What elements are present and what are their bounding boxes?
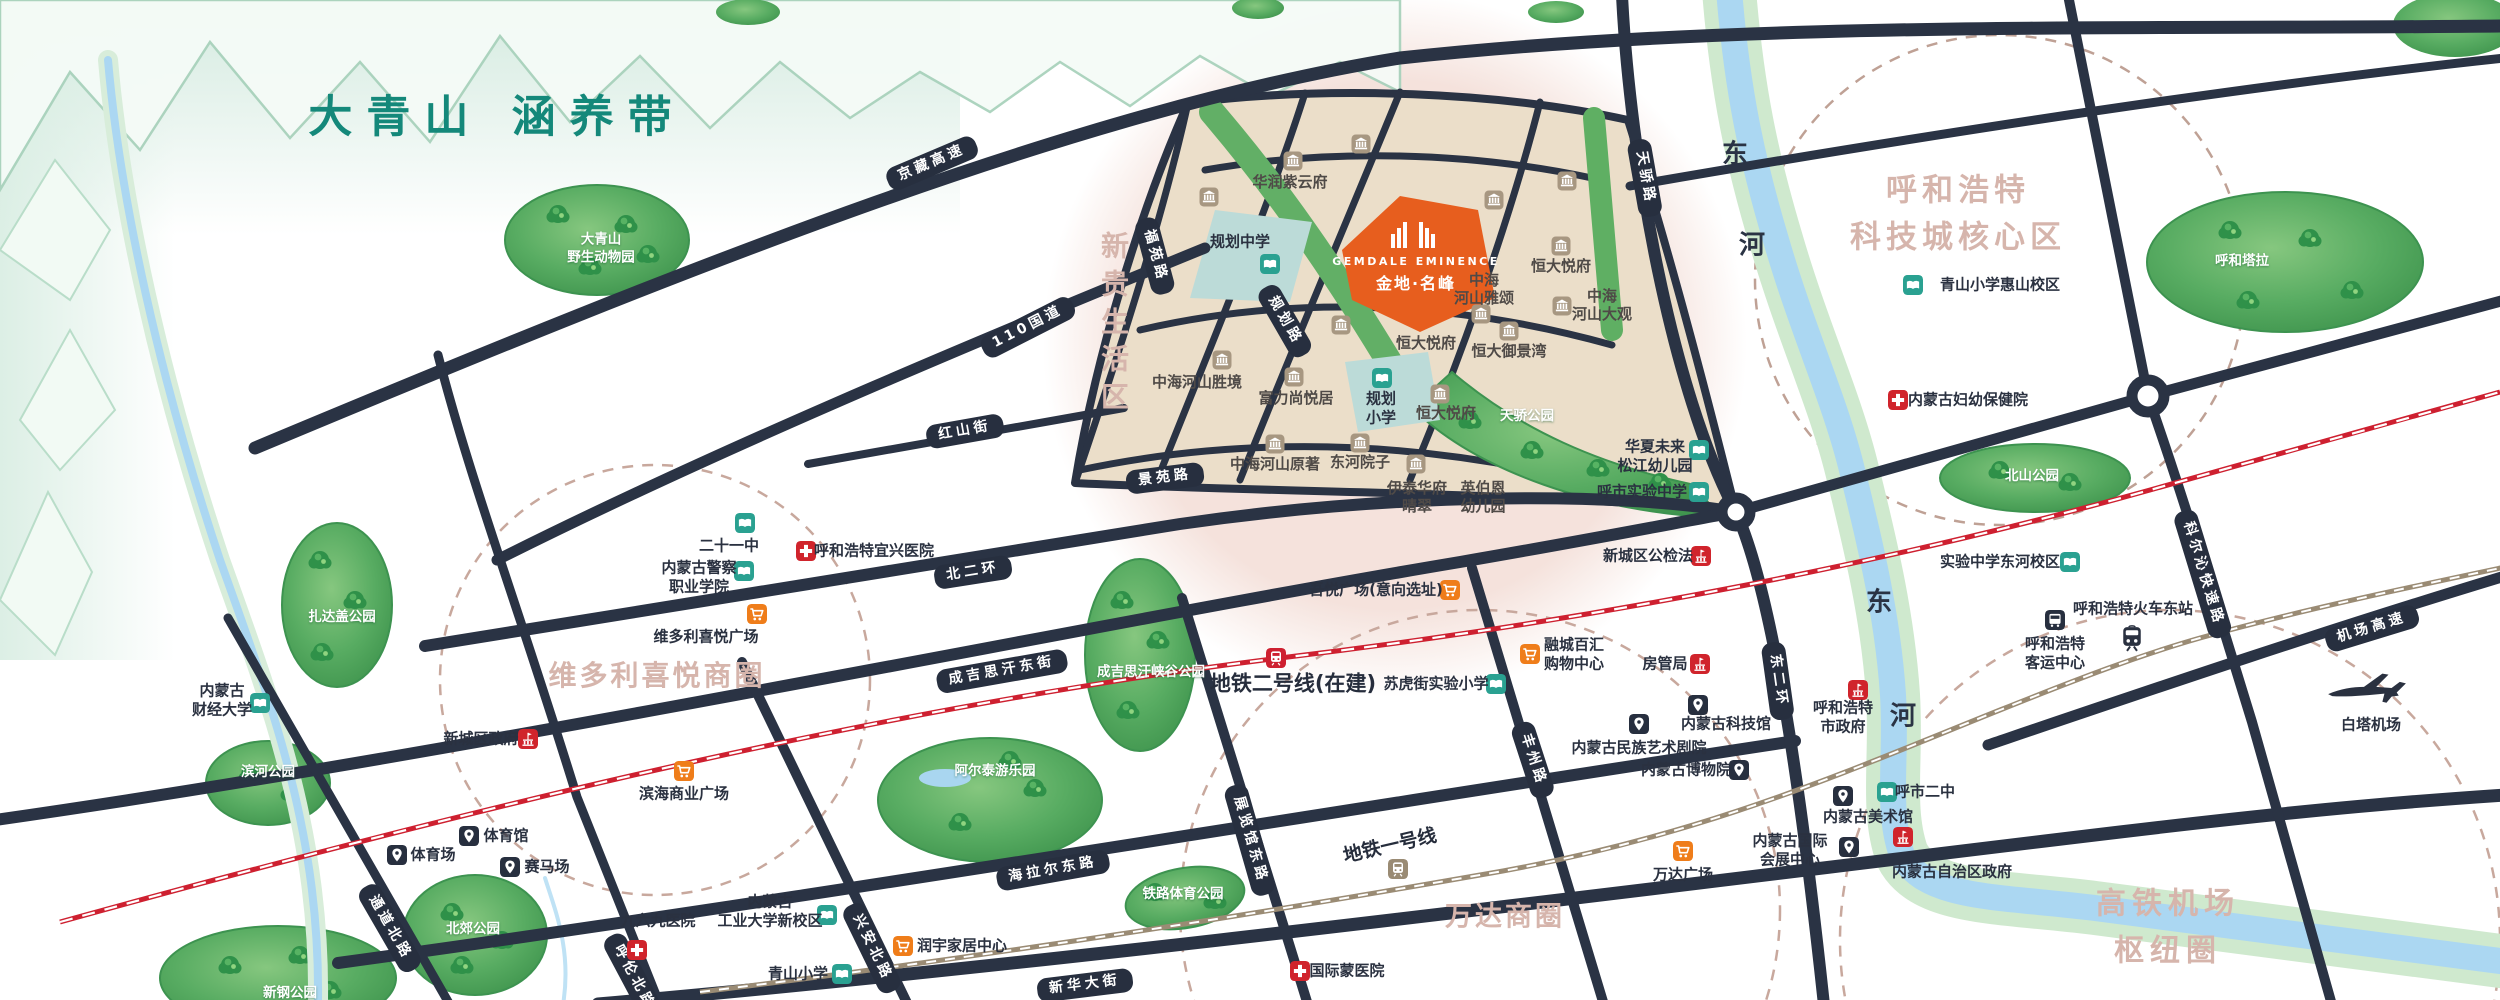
estate-label: 富力尚悦居 — [1258, 389, 1333, 407]
poi-label: 苏虎街实验小学 — [1383, 675, 1488, 694]
park-label: 铁路体育公园 — [1143, 886, 1224, 904]
poi-label: 内蒙古 财经大学 — [192, 681, 252, 719]
road-label: 景苑路 — [1125, 462, 1205, 495]
park-label: 北郊公园 — [446, 921, 500, 939]
river-label-char: 河 — [1890, 696, 1916, 733]
road-label: 科尔沁快速路 — [2172, 507, 2233, 640]
estate-label: 恒大悦府 — [1416, 404, 1476, 422]
poi-icon-gov — [1691, 546, 1711, 566]
poi-label: 青山小学惠山校区 — [1940, 276, 2060, 295]
region-label: 维多利喜悦商圈 — [548, 658, 765, 694]
poi-label: 呼市实验中学 — [1597, 483, 1687, 502]
poi-label: 内蒙古民族艺术剧院 — [1571, 739, 1706, 758]
gemdale-towers-icon — [1389, 222, 1443, 248]
poi-label: 九六九医院 — [620, 912, 695, 931]
poi-icon-metro2 — [1266, 648, 1286, 668]
river-label-char: 东 — [1722, 134, 1748, 171]
estate-building-icon — [1332, 316, 1351, 335]
road-label: 福苑路 — [1134, 215, 1177, 296]
poi-label: 实验中学东河校区 — [1940, 553, 2060, 572]
estate-building-icon — [1485, 191, 1504, 210]
poi-icon-school — [734, 561, 754, 581]
poi-icon-plane — [2322, 669, 2410, 711]
estate-building-icon — [1352, 135, 1371, 154]
poi-icon-shop — [1520, 644, 1540, 664]
poi-icon-shop — [893, 936, 913, 956]
park-label: 大青山 野生动物园 — [567, 231, 635, 266]
poi-label: 新城区公检法 — [1603, 547, 1693, 566]
park-label: 北山公园 — [2005, 468, 2059, 486]
estate-label: 中海 河山大观 — [1572, 287, 1632, 323]
poi-icon-school — [1903, 275, 1923, 295]
poi-icon-school — [1689, 482, 1709, 502]
poi-label: 融城百汇 购物中心 — [1544, 635, 1604, 673]
estate-label: 英伯恩 幼儿园 — [1460, 479, 1505, 515]
road-label: 北二环 — [933, 554, 1014, 589]
poi-icon-shop — [1440, 580, 1460, 600]
region-label: 大青山 涵养带 — [308, 88, 685, 145]
estate-label: 伊泰华府 晴翠 — [1387, 479, 1447, 515]
poi-icon-gov — [1893, 827, 1913, 847]
poi-label: 万达广场 — [1653, 866, 1713, 885]
estate-label: 中海河山胜境 — [1152, 373, 1242, 391]
park-label: 滨河公园 — [241, 764, 295, 782]
estate-building-icon — [1351, 434, 1370, 453]
location-map: GEMDALE EMINENCE 金地·名峰 大青山 涵养带新 贵 生 活 区呼… — [0, 0, 2500, 1000]
poi-label: 二十一中 — [699, 537, 759, 556]
road-label: 海拉尔东路 — [995, 849, 1111, 892]
poi-icon-shop — [747, 604, 767, 624]
estate-building-icon — [1431, 385, 1450, 404]
park-label: 扎达盖公园 — [308, 609, 376, 627]
poi-icon-train — [2117, 623, 2147, 655]
poi-label: 内蒙古警察 职业学院 — [661, 558, 736, 596]
estate-building-icon — [1407, 455, 1426, 474]
poi-icon-gov — [518, 729, 538, 749]
road-label: 红山街 — [925, 413, 1006, 450]
estate-label: 恒大御景湾 — [1471, 342, 1546, 360]
estate-building-icon — [1284, 152, 1303, 171]
poi-label: 内蒙古自治区政府 — [1892, 863, 2012, 882]
poi-icon-school — [832, 964, 852, 984]
poi-icon-hospital — [1290, 961, 1310, 981]
poi-icon-pin — [459, 826, 479, 846]
poi-label: 青山小学 — [768, 965, 828, 984]
road-label: 东二环 — [1761, 641, 1795, 722]
poi-icon-pin — [1729, 760, 1749, 780]
poi-label: 内蒙古国际 会展中心 — [1752, 831, 1827, 869]
road-label: 展览馆东路 — [1223, 782, 1277, 898]
poi-icon-metro1 — [1388, 859, 1408, 879]
poi-icon-school — [1372, 368, 1392, 388]
poi-icon-gov — [1848, 680, 1868, 700]
poi-icon-pin — [1833, 786, 1853, 806]
park-label: 成吉思汗峡谷公园 — [1097, 664, 1205, 682]
park-label: 阿尔泰游乐园 — [955, 763, 1036, 781]
estate-label: 恒大悦府 — [1531, 257, 1591, 275]
poi-label: 体育馆 — [483, 827, 528, 846]
poi-icon-hospital — [627, 940, 647, 960]
estate-label: 中海河山原著 — [1230, 455, 1320, 473]
poi-label: 新城区政府 — [443, 730, 518, 749]
poi-label: 规划 小学 — [1366, 389, 1396, 427]
poi-icon-school — [2060, 552, 2080, 572]
estate-building-icon — [1472, 305, 1491, 324]
estate-building-icon — [1558, 172, 1577, 191]
estate-building-icon — [1285, 368, 1304, 387]
poi-icon-shop — [1673, 841, 1693, 861]
road-label: 通道北路 — [356, 881, 424, 976]
poi-label: 滨海商业广场 — [639, 785, 729, 804]
park-label: 呼和塔拉 — [2215, 253, 2269, 271]
poi-label: 规划中学 — [1210, 233, 1270, 252]
estate-label: 华润紫云府 — [1252, 173, 1327, 191]
poi-label: 吾悦广场(意向选址) — [1309, 581, 1443, 600]
region-label: 新 贵 生 活 区 — [1101, 228, 1129, 417]
poi-icon-pin — [500, 857, 520, 877]
road-label: 规划路 — [1255, 281, 1314, 360]
park-label: 天骄公园 — [1500, 408, 1554, 426]
poi-icon-bus — [2045, 610, 2065, 630]
park-label: 新钢公园 — [263, 985, 317, 1000]
poi-label: 维多利喜悦广场 — [653, 628, 758, 647]
poi-label: 内蒙古科技馆 — [1681, 715, 1771, 734]
road-label: 机场高速 — [2323, 603, 2422, 654]
poi-label: 赛马场 — [524, 858, 569, 877]
poi-label: 呼和浩特宜兴医院 — [814, 542, 934, 561]
poi-icon-pin — [1688, 695, 1708, 715]
poi-label: 呼市二中 — [1895, 783, 1955, 802]
poi-label: 润宇家居中心 — [917, 937, 1007, 956]
poi-label: 内蒙古 工业大学新校区 — [717, 892, 822, 930]
poi-icon-school — [735, 513, 755, 533]
poi-label: 呼和浩特 客运中心 — [2025, 634, 2085, 672]
poi-icon-gov — [1690, 654, 1710, 674]
road-label: 京藏高速 — [883, 133, 981, 192]
poi-icon-shop — [674, 761, 694, 781]
poi-label: 呼和浩特 市政府 — [1813, 698, 1873, 736]
road-label: 新华大街 — [1036, 967, 1134, 1000]
poi-label: 国际蒙医院 — [1309, 962, 1384, 981]
region-label: 呼和浩特 科技城核心区 — [1850, 168, 2066, 261]
road-label: 成吉思汗东街 — [935, 648, 1069, 694]
poi-label: 房管局 — [1642, 655, 1687, 674]
poi-label: 内蒙古妇幼保健院 — [1908, 391, 2028, 410]
poi-label: 体育场 — [410, 846, 455, 865]
poi-label: 呼和浩特火车东站 — [2073, 600, 2193, 619]
poi-label: 内蒙古博物院 — [1641, 761, 1731, 780]
metro-line-label: 地铁二号线(在建) — [1210, 670, 1376, 697]
estate-building-icon — [1553, 297, 1572, 316]
poi-icon-pin — [387, 845, 407, 865]
river-label-char: 东 — [1866, 582, 1892, 619]
estate-building-icon — [1552, 237, 1571, 256]
road-label: 天骄路 — [1627, 138, 1664, 219]
road-label: 丰州路 — [1510, 719, 1556, 800]
region-label: 高铁机场 枢纽圈 — [2096, 882, 2240, 975]
map-labels: GEMDALE EMINENCE 金地·名峰 大青山 涵养带新 贵 生 活 区呼… — [0, 0, 2500, 1000]
estate-label: 恒大悦府 — [1396, 334, 1456, 352]
poi-icon-school — [1260, 254, 1280, 274]
poi-icon-hospital — [1888, 390, 1908, 410]
poi-icon-school — [250, 693, 270, 713]
estate-label: 东河院子 — [1330, 453, 1390, 471]
road-label: 110国道 — [978, 294, 1079, 361]
poi-label: 内蒙古美术馆 — [1823, 808, 1913, 827]
poi-icon-school — [1486, 674, 1506, 694]
poi-label: 华夏未来 松江幼儿园 — [1617, 437, 1692, 475]
estate-building-icon — [1213, 351, 1232, 370]
estate-building-icon — [1266, 435, 1285, 454]
estate-building-icon — [1200, 188, 1219, 207]
gemdale-name-en: GEMDALE EMINENCE — [1331, 255, 1501, 268]
poi-icon-pin — [1839, 837, 1859, 857]
estate-label: 中海 河山雅颂 — [1454, 271, 1514, 307]
poi-icon-pin — [1629, 714, 1649, 734]
estate-building-icon — [1500, 322, 1519, 341]
region-label: 万达商圈 — [1445, 899, 1565, 934]
poi-label: 白塔机场 — [2341, 716, 2401, 735]
river-label-char: 河 — [1739, 225, 1765, 262]
